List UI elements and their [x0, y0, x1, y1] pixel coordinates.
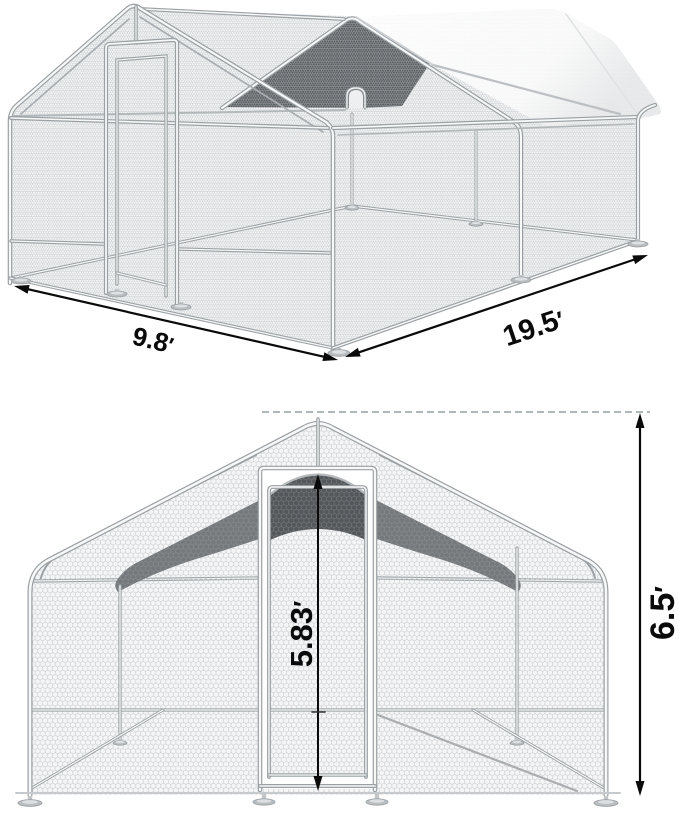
svg-text:6.5′: 6.5′ [644, 586, 679, 640]
svg-text:5.83′: 5.83′ [284, 601, 319, 668]
